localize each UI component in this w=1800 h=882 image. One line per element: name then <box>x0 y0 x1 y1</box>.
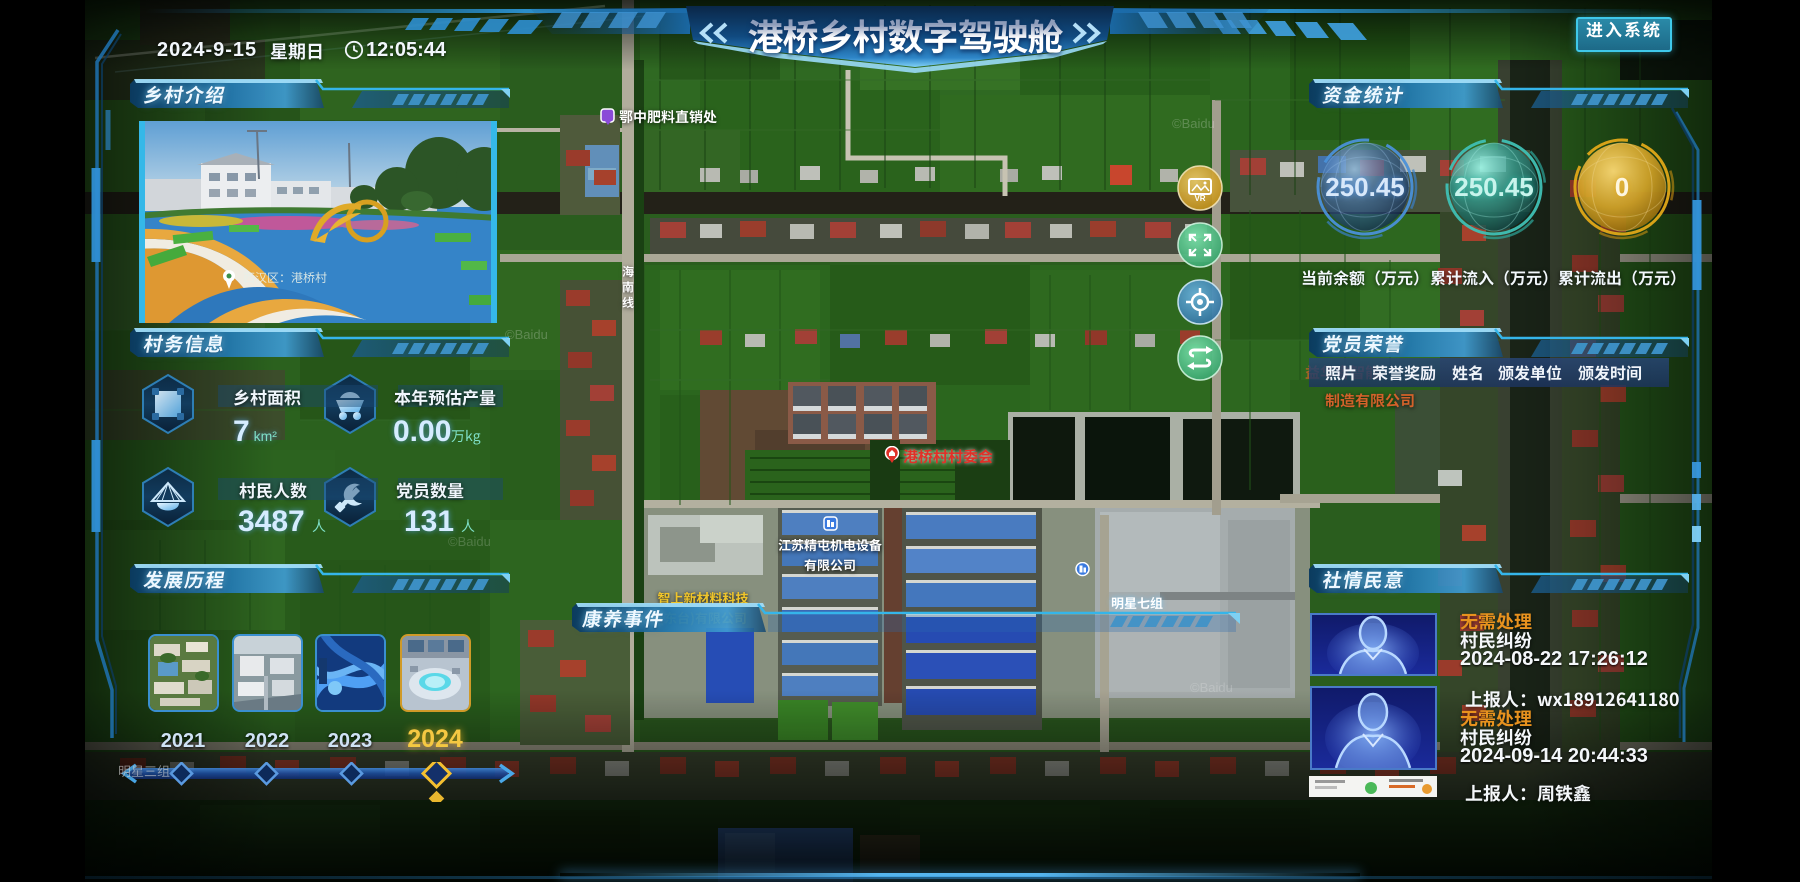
svg-text:VR: VR <box>1194 194 1205 203</box>
